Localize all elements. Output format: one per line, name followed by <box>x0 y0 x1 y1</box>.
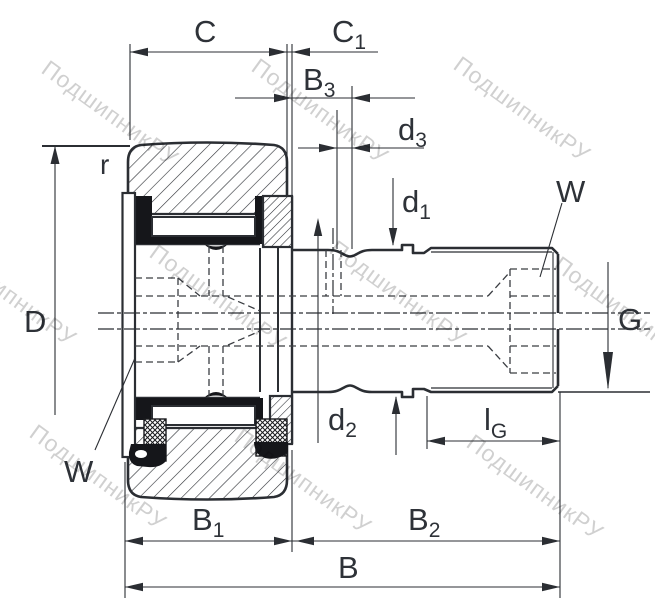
flange-washer-left <box>123 193 136 457</box>
watermark-text: ПодшипникРУ <box>549 251 655 367</box>
cam-follower-bearing-drawing: C C1 B3 d3 d1 d2 W W G D r lG B1 B2 B По… <box>0 0 655 611</box>
watermark-text: ПодшипникРУ <box>462 429 608 545</box>
technical-drawing-page: C C1 B3 d3 d1 d2 W W G D r lG B1 B2 B По… <box>0 0 655 611</box>
dim-label-d3: d3 <box>398 112 427 152</box>
dim-label-C: C <box>194 14 216 49</box>
watermark-text: ПодшипникРУ <box>37 55 183 171</box>
dim-label-C1: C1 <box>332 14 366 54</box>
dim-label-B: B <box>338 550 359 585</box>
watermark-text: ПодшипникРУ <box>449 51 595 167</box>
dim-label-B2: B2 <box>408 502 440 542</box>
roller-top <box>152 217 255 236</box>
hex-socket-right <box>488 269 556 373</box>
dim-label-d2: d2 <box>328 402 357 442</box>
collar-top <box>263 196 292 247</box>
roller-bottom <box>152 406 255 425</box>
dim-label-B1: B1 <box>192 502 224 542</box>
dim-label-W-top: W <box>556 174 586 209</box>
dim-label-d1: d1 <box>402 184 431 224</box>
dim-label-r: r <box>100 149 109 180</box>
